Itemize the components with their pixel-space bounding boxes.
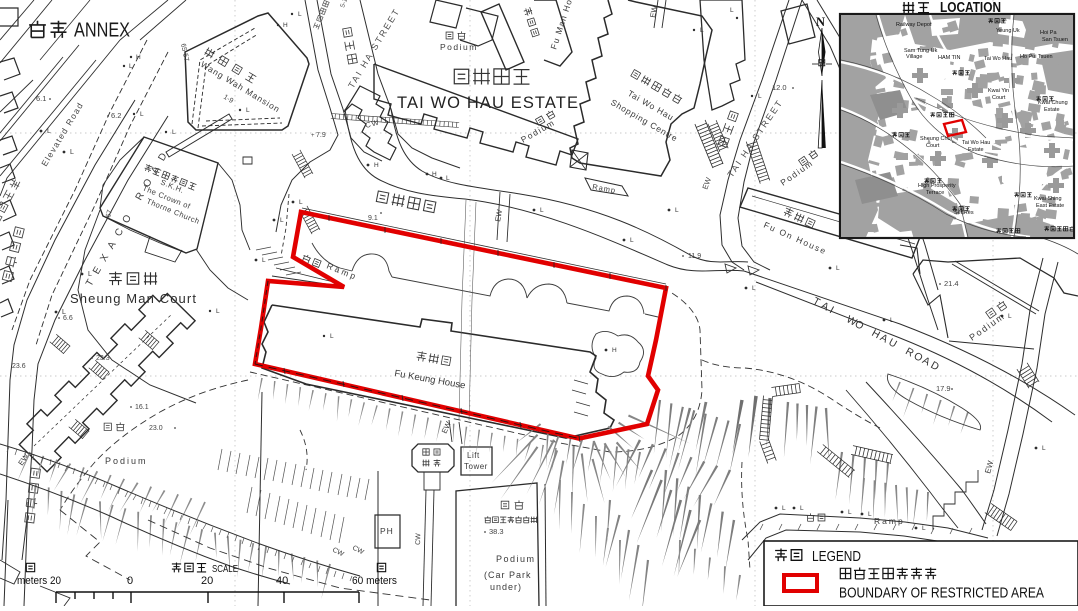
svg-text:6.1: 6.1 (36, 94, 46, 103)
svg-text:L: L (129, 63, 133, 70)
svg-text:High Prosperity: High Prosperity (918, 183, 956, 189)
svg-text:H: H (374, 162, 379, 169)
svg-text:LOCATION: LOCATION (940, 0, 1001, 16)
svg-text:H: H (283, 22, 288, 29)
svg-text:LEGEND: LEGEND (812, 548, 861, 565)
svg-text:L: L (890, 317, 894, 324)
svg-text:L: L (216, 308, 220, 315)
svg-text:L: L (922, 525, 926, 532)
svg-text:L: L (1042, 445, 1046, 452)
svg-text:Lift: Lift (467, 451, 480, 460)
svg-text:CW: CW (415, 533, 422, 545)
svg-text:7.9: 7.9 (316, 132, 326, 139)
svg-text:L: L (140, 111, 144, 118)
svg-text:Tower: Tower (464, 462, 488, 471)
svg-text:L: L (630, 237, 634, 244)
svg-text:Yeung Uk: Yeung Uk (996, 28, 1020, 34)
svg-text:L: L (868, 511, 872, 518)
svg-text:L: L (752, 285, 756, 292)
svg-text:12.0: 12.0 (772, 83, 787, 92)
svg-text:ANNEX: ANNEX (74, 20, 130, 42)
svg-text:21.4: 21.4 (944, 279, 959, 288)
svg-text:6.6: 6.6 (63, 315, 73, 322)
svg-text:L: L (540, 207, 544, 214)
svg-text:17.9: 17.9 (936, 384, 951, 393)
svg-text:20: 20 (201, 575, 213, 587)
svg-text:L: L (70, 149, 74, 156)
svg-text:Kwai Shing: Kwai Shing (1034, 196, 1062, 202)
svg-text:L: L (88, 271, 92, 278)
svg-text:40: 40 (276, 575, 288, 587)
svg-text:L: L (675, 207, 679, 214)
svg-text:Ser.Res: Ser.Res (954, 210, 974, 216)
svg-text:L: L (280, 217, 284, 224)
svg-text:6.2: 6.2 (111, 111, 121, 120)
svg-text:HAM TIN: HAM TIN (938, 55, 961, 61)
svg-text:L: L (172, 129, 176, 136)
svg-text:L: L (246, 107, 250, 114)
svg-text:L: L (700, 27, 704, 34)
svg-text:L: L (800, 505, 804, 512)
svg-text:(Car Park: (Car Park (484, 570, 532, 580)
svg-text:Tai Wo Hau: Tai Wo Hau (984, 56, 1012, 62)
svg-text:11.9: 11.9 (688, 253, 701, 260)
svg-text:East Estate: East Estate (1036, 203, 1064, 209)
svg-text:L: L (47, 128, 51, 135)
svg-text:38.3: 38.3 (489, 527, 504, 536)
svg-text:Estate: Estate (968, 147, 984, 153)
svg-text:L: L (758, 93, 762, 100)
svg-text:L: L (730, 7, 734, 14)
svg-text:PH: PH (380, 526, 394, 536)
svg-text:Terrace: Terrace (926, 190, 944, 196)
svg-text:L: L (330, 333, 334, 340)
svg-text:BOUNDARY OF RESTRICTED AREA: BOUNDARY OF RESTRICTED AREA (839, 585, 1045, 602)
svg-text:Court: Court (992, 95, 1006, 101)
svg-text:+: + (311, 133, 315, 139)
svg-text:23.3: 23.3 (96, 355, 110, 362)
svg-text:Court: Court (926, 143, 940, 149)
svg-text:Podium: Podium (496, 554, 536, 564)
svg-text:9.1: 9.1 (368, 215, 378, 222)
svg-text:L: L (782, 505, 786, 512)
svg-text:L: L (848, 509, 852, 516)
svg-text:Podium: Podium (105, 456, 148, 466)
svg-text:H: H (136, 54, 141, 61)
svg-text:60 meters: 60 meters (352, 575, 397, 587)
svg-text:L: L (262, 257, 266, 264)
svg-text:TAI WO HAU ESTATE: TAI WO HAU ESTATE (397, 94, 578, 112)
svg-text:meters 20: meters 20 (17, 575, 61, 587)
svg-text:under): under) (490, 582, 522, 592)
svg-text:L: L (836, 265, 840, 272)
svg-text:N: N (816, 15, 825, 29)
svg-text:Tai Wo Hau: Tai Wo Hau (962, 140, 990, 146)
svg-text:Kwai Yin: Kwai Yin (988, 88, 1009, 94)
svg-text:0: 0 (127, 575, 133, 587)
svg-text:L: L (1008, 313, 1012, 320)
svg-text:Estate: Estate (1044, 107, 1060, 113)
svg-text:23.6: 23.6 (12, 363, 26, 370)
svg-text:16.1: 16.1 (135, 404, 149, 411)
svg-text:Hoi Pa: Hoi Pa (1040, 30, 1057, 36)
svg-text:Railway Depot: Railway Depot (896, 22, 932, 28)
svg-text:San Tsuen: San Tsuen (1042, 37, 1068, 43)
svg-text:23.0: 23.0 (149, 425, 163, 432)
svg-text:H: H (612, 347, 617, 354)
svg-text:Ho Pui Tsuen: Ho Pui Tsuen (1020, 54, 1053, 60)
svg-text:L: L (298, 11, 302, 18)
svg-text:Ramp: Ramp (874, 516, 905, 526)
svg-text:SCALE: SCALE (212, 563, 238, 575)
svg-text:Village: Village (906, 54, 922, 60)
svg-text:L: L (299, 199, 303, 206)
